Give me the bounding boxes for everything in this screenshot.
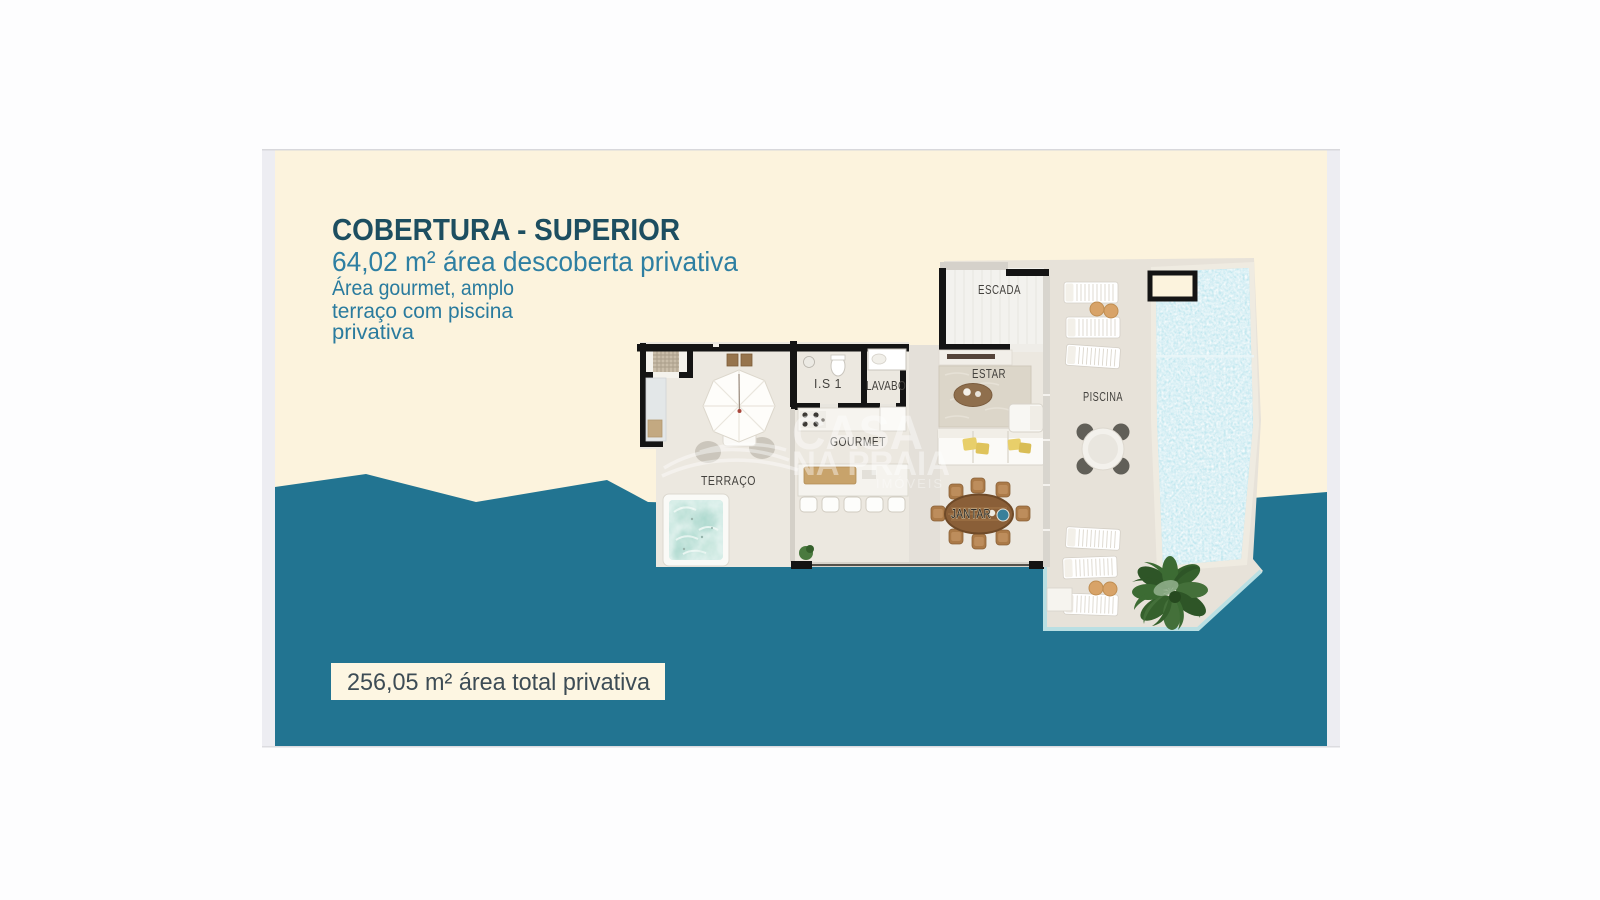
svg-text:terraço com piscina: terraço com piscina bbox=[332, 300, 513, 323]
svg-text:ESTAR: ESTAR bbox=[972, 367, 1006, 381]
svg-text:TERRAÇO: TERRAÇO bbox=[701, 474, 756, 488]
svg-text:PISCINA: PISCINA bbox=[1083, 390, 1123, 404]
svg-text:Área gourmet, amplo: Área gourmet, amplo bbox=[332, 277, 514, 300]
svg-text:I.S 1: I.S 1 bbox=[814, 377, 842, 391]
svg-text:256,05 m² área total privativa: 256,05 m² área total privativa bbox=[347, 669, 651, 696]
svg-text:JANTAR: JANTAR bbox=[951, 507, 991, 521]
svg-text:LAVABO: LAVABO bbox=[866, 379, 906, 393]
svg-text:privativa: privativa bbox=[332, 321, 414, 344]
svg-text:64,02 m² área descoberta priva: 64,02 m² área descoberta privativa bbox=[332, 246, 738, 277]
svg-text:COBERTURA - SUPERIOR: COBERTURA - SUPERIOR bbox=[332, 212, 680, 247]
svg-text:ESCADA: ESCADA bbox=[978, 283, 1021, 297]
svg-text:IMÓVEIS: IMÓVEIS bbox=[876, 476, 944, 491]
